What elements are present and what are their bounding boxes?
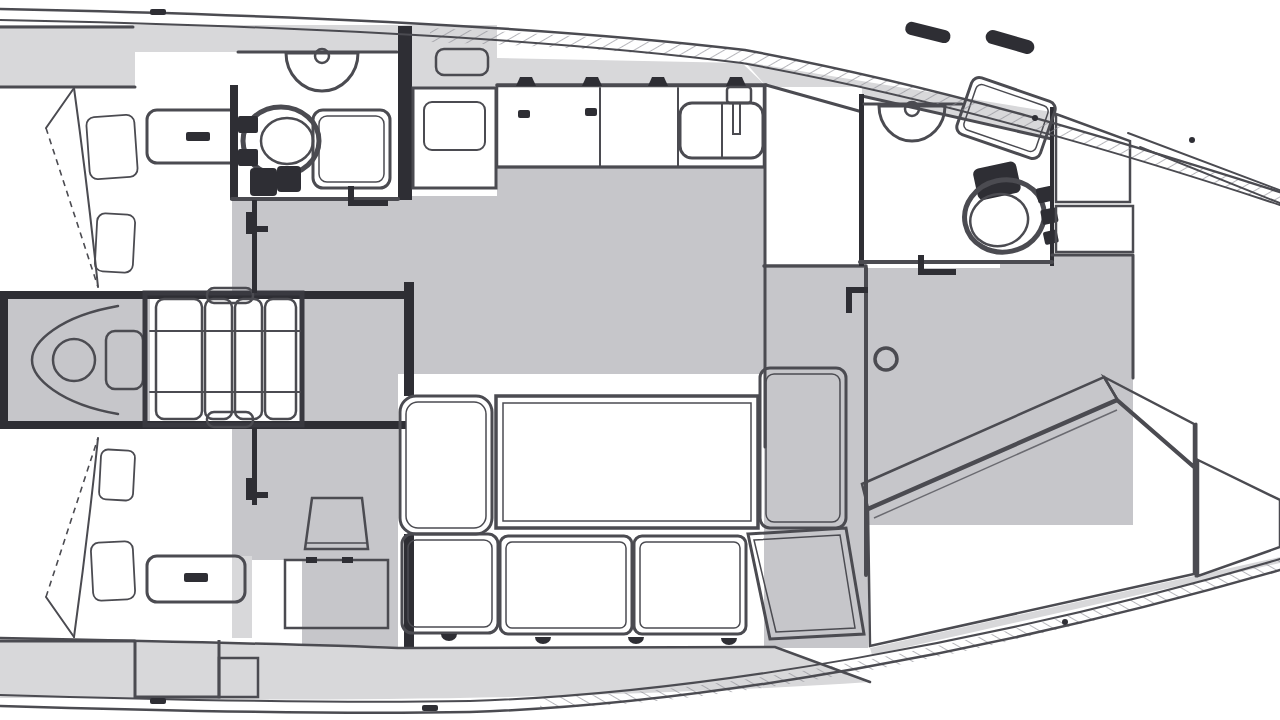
engine-compartment: Engine compartment [0,296,150,424]
settee-feet [441,634,737,645]
yacht-deck-plan: Sailboat interior deck plan, bow to the … [0,0,1280,720]
galley-double-sink: Double galley sink with faucet [680,87,763,158]
saloon-armchair: Settee end seat [400,396,492,534]
settee-benches: Settee bench seats [402,534,746,634]
companionway-steps [145,288,302,427]
saloon-table: Saloon dining table [496,396,758,528]
aft-head: Aft head: toilet, washbasin, shower pan … [230,26,412,206]
